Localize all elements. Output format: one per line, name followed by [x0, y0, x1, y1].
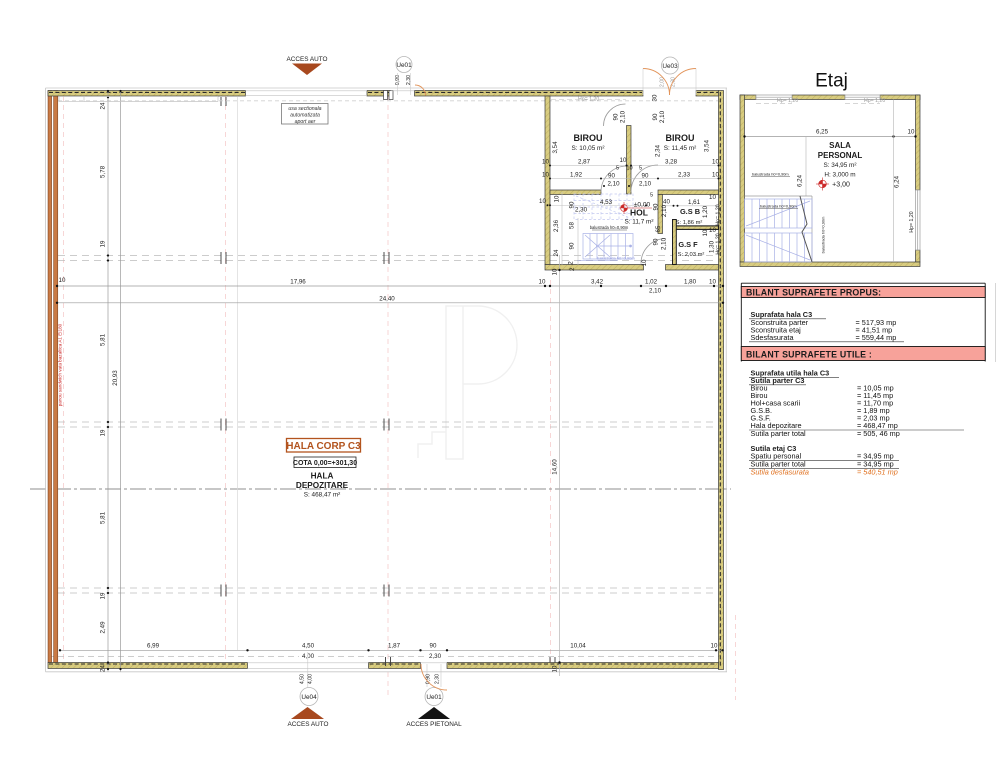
svg-text:2: 2	[568, 261, 575, 265]
svg-text:90: 90	[642, 172, 649, 179]
svg-text:40: 40	[663, 199, 670, 206]
svg-text:usa sectionala: usa sectionala	[288, 106, 321, 112]
svg-text:90: 90	[430, 643, 437, 650]
svg-text:1,61: 1,61	[688, 199, 701, 206]
svg-text:Ue01: Ue01	[396, 62, 412, 69]
svg-text:1,30: 1,30	[709, 240, 716, 253]
svg-text:4,00: 4,00	[308, 674, 314, 684]
svg-text:1,92: 1,92	[570, 172, 583, 179]
svg-text:2,10: 2,10	[659, 110, 666, 123]
svg-text:10: 10	[709, 227, 716, 234]
svg-text:2,10: 2,10	[620, 110, 627, 123]
svg-text:14,60: 14,60	[552, 459, 559, 475]
svg-text:24: 24	[553, 249, 560, 256]
svg-text:90: 90	[653, 203, 660, 210]
svg-text:4,50: 4,50	[302, 643, 315, 650]
svg-text:BILANT SUPRAFETE UTILE :: BILANT SUPRAFETE UTILE :	[746, 349, 872, 359]
svg-text:5,81: 5,81	[100, 333, 107, 346]
svg-text:balustrada h0=0,90m: balustrada h0=0,90m	[752, 172, 789, 177]
svg-text:10: 10	[908, 129, 915, 136]
svg-text:90: 90	[613, 113, 620, 120]
svg-text:4,53: 4,53	[600, 199, 613, 206]
svg-text:Hp= 1,20: Hp= 1,20	[864, 98, 885, 104]
svg-text:+3,00: +3,00	[832, 182, 850, 189]
svg-text:Hp= 1,20: Hp= 1,20	[716, 204, 722, 225]
svg-text:2,10: 2,10	[607, 180, 620, 187]
svg-text:1,80: 1,80	[684, 279, 697, 286]
svg-text:17,96: 17,96	[290, 279, 306, 286]
svg-text:10: 10	[539, 198, 546, 205]
svg-text:10: 10	[59, 277, 66, 284]
svg-text:Ue03: Ue03	[662, 63, 678, 70]
svg-text:1,02: 1,02	[645, 279, 658, 286]
svg-text:Hp= 1,20: Hp= 1,20	[777, 98, 798, 104]
svg-text:58: 58	[569, 222, 576, 229]
svg-text:2,30: 2,30	[435, 674, 441, 684]
svg-text:1,20: 1,20	[702, 205, 709, 218]
svg-text:20,93: 20,93	[112, 370, 119, 386]
svg-text:S: 2,03 m²: S: 2,03 m²	[678, 252, 705, 258]
svg-text:2,10: 2,10	[661, 204, 668, 217]
svg-text:ACCES PIETONAL: ACCES PIETONAL	[406, 721, 462, 728]
svg-text:2,49: 2,49	[100, 621, 107, 634]
svg-text:10: 10	[702, 229, 709, 236]
svg-text:24: 24	[100, 665, 107, 672]
svg-text:panou sandwich vata bazaltica: panou sandwich vata bazaltica A1 EI180	[58, 323, 63, 406]
svg-text:19: 19	[100, 240, 107, 247]
svg-text:COTA 0,00=+301,30: COTA 0,00=+301,30	[293, 460, 357, 467]
svg-text:2: 2	[569, 267, 576, 271]
svg-text:S: 468,47 m²: S: 468,47 m²	[304, 492, 341, 499]
svg-text:balustrada h0=0,90m: balustrada h0=0,90m	[590, 225, 629, 230]
svg-text:10: 10	[712, 172, 719, 179]
svg-text:10: 10	[709, 194, 716, 201]
svg-text:2,00: 2,00	[660, 77, 666, 87]
svg-text:10: 10	[542, 172, 549, 179]
svg-text:Ue01: Ue01	[426, 694, 442, 701]
svg-text:90: 90	[608, 172, 615, 179]
svg-text:19: 19	[100, 429, 107, 436]
svg-text:Sutila desfasurata: Sutila desfasurata	[751, 468, 809, 477]
svg-text:S: 11,7 m²: S: 11,7 m²	[624, 219, 653, 226]
svg-text:S: 10,05 m²: S: 10,05 m²	[571, 145, 604, 152]
svg-text:H: 3,000 m: H: 3,000 m	[824, 172, 855, 179]
svg-text:90: 90	[652, 113, 659, 120]
svg-text:balustrada h0=0,90m: balustrada h0=0,90m	[821, 217, 826, 254]
svg-text:aport aer: aport aer	[295, 119, 316, 125]
svg-text:3,42: 3,42	[591, 279, 604, 286]
svg-text:balustrada h0=0,90m: balustrada h0=0,90m	[597, 256, 635, 261]
svg-text:24,40: 24,40	[379, 295, 395, 302]
svg-text:10: 10	[539, 279, 546, 286]
svg-text:2,34: 2,34	[655, 144, 662, 157]
svg-text:6,99: 6,99	[147, 643, 160, 650]
svg-text:Hp= 1,20: Hp= 1,20	[909, 211, 915, 232]
svg-text:= 505, 46 mp: = 505, 46 mp	[857, 429, 900, 438]
svg-text:10,04: 10,04	[570, 643, 586, 650]
svg-text:3,54: 3,54	[704, 139, 711, 152]
svg-text:HOL: HOL	[630, 208, 648, 218]
svg-text:19: 19	[100, 592, 107, 599]
svg-text:90: 90	[569, 201, 576, 208]
svg-text:2,10: 2,10	[661, 237, 668, 250]
svg-text:DEPOZITARE: DEPOZITARE	[296, 481, 349, 490]
svg-text:10: 10	[552, 665, 559, 672]
svg-text:SALA: SALA	[829, 141, 851, 150]
svg-text:5: 5	[639, 166, 642, 172]
svg-text:10: 10	[552, 268, 559, 275]
svg-text:Sutila parter total: Sutila parter total	[751, 429, 807, 438]
svg-text:HALA CORP C3: HALA CORP C3	[286, 441, 361, 452]
svg-text:ACCES AUTO: ACCES AUTO	[287, 721, 328, 728]
svg-text:2,30: 2,30	[429, 653, 442, 660]
svg-text:balustrada h0=0,90m: balustrada h0=0,90m	[760, 204, 797, 209]
svg-text:Hp= 1,20: Hp= 1,20	[578, 97, 599, 103]
svg-text:BIROU: BIROU	[666, 133, 695, 143]
svg-text:3,28: 3,28	[665, 159, 678, 166]
svg-text:4,50: 4,50	[300, 674, 306, 684]
svg-text:90: 90	[569, 242, 576, 249]
svg-text:5,78: 5,78	[100, 165, 107, 178]
svg-text:5: 5	[650, 193, 653, 199]
svg-text:10: 10	[641, 259, 648, 266]
svg-text:1,87: 1,87	[388, 643, 401, 650]
svg-text:0,90: 0,90	[395, 75, 401, 85]
svg-text:10: 10	[709, 279, 716, 286]
svg-text:65: 65	[655, 225, 662, 232]
svg-text:24: 24	[100, 102, 107, 109]
svg-text:2,36: 2,36	[553, 219, 560, 232]
svg-text:2,30: 2,30	[406, 75, 412, 85]
svg-text:ACCES AUTO: ACCES AUTO	[286, 56, 327, 63]
svg-text:6,25: 6,25	[816, 129, 829, 136]
svg-text:3,54: 3,54	[552, 141, 559, 154]
svg-text:automatizata: automatizata	[290, 113, 320, 119]
svg-text:= 540,51 mp: = 540,51 mp	[857, 468, 898, 477]
svg-text:2,87: 2,87	[578, 159, 591, 166]
svg-text:90: 90	[653, 238, 660, 245]
svg-text:30: 30	[652, 94, 659, 101]
svg-text:= 559,44 mp: = 559,44 mp	[856, 333, 897, 342]
svg-text:4,00: 4,00	[302, 653, 315, 660]
svg-text:Etaj: Etaj	[815, 71, 848, 92]
svg-text:10: 10	[711, 643, 718, 650]
svg-text:HALA: HALA	[311, 472, 334, 481]
svg-text:10: 10	[542, 159, 549, 166]
svg-text:S: 34,95 m²: S: 34,95 m²	[823, 162, 856, 169]
svg-text:G.S F: G.S F	[678, 240, 698, 249]
svg-text:PERSONAL: PERSONAL	[818, 151, 863, 160]
svg-text:6,24: 6,24	[797, 174, 804, 187]
svg-text:Hp= 1,20: Hp= 1,20	[716, 233, 722, 254]
svg-text:BILANT SUPRAFETE PROPUS:: BILANT SUPRAFETE PROPUS:	[746, 287, 881, 297]
svg-text:6,24: 6,24	[894, 175, 901, 188]
svg-text:10: 10	[620, 157, 627, 164]
svg-text:10: 10	[626, 166, 632, 172]
svg-text:S: 11,45 m²: S: 11,45 m²	[664, 145, 697, 152]
svg-text:BIROU: BIROU	[574, 133, 603, 143]
svg-text:10: 10	[554, 195, 561, 202]
svg-text:S: 1,86 m²: S: 1,86 m²	[676, 220, 703, 226]
svg-text:5,81: 5,81	[100, 511, 107, 524]
svg-text:2,10: 2,10	[639, 180, 652, 187]
svg-text:5: 5	[616, 166, 619, 172]
svg-text:10: 10	[712, 159, 719, 166]
svg-text:2,33: 2,33	[678, 172, 691, 179]
svg-text:G.S B: G.S B	[680, 207, 700, 216]
svg-text:Sdesfasurata: Sdesfasurata	[751, 333, 795, 342]
svg-text:Ue04: Ue04	[301, 694, 317, 701]
svg-text:2,10: 2,10	[649, 288, 662, 295]
svg-text:2,30: 2,30	[575, 207, 588, 214]
